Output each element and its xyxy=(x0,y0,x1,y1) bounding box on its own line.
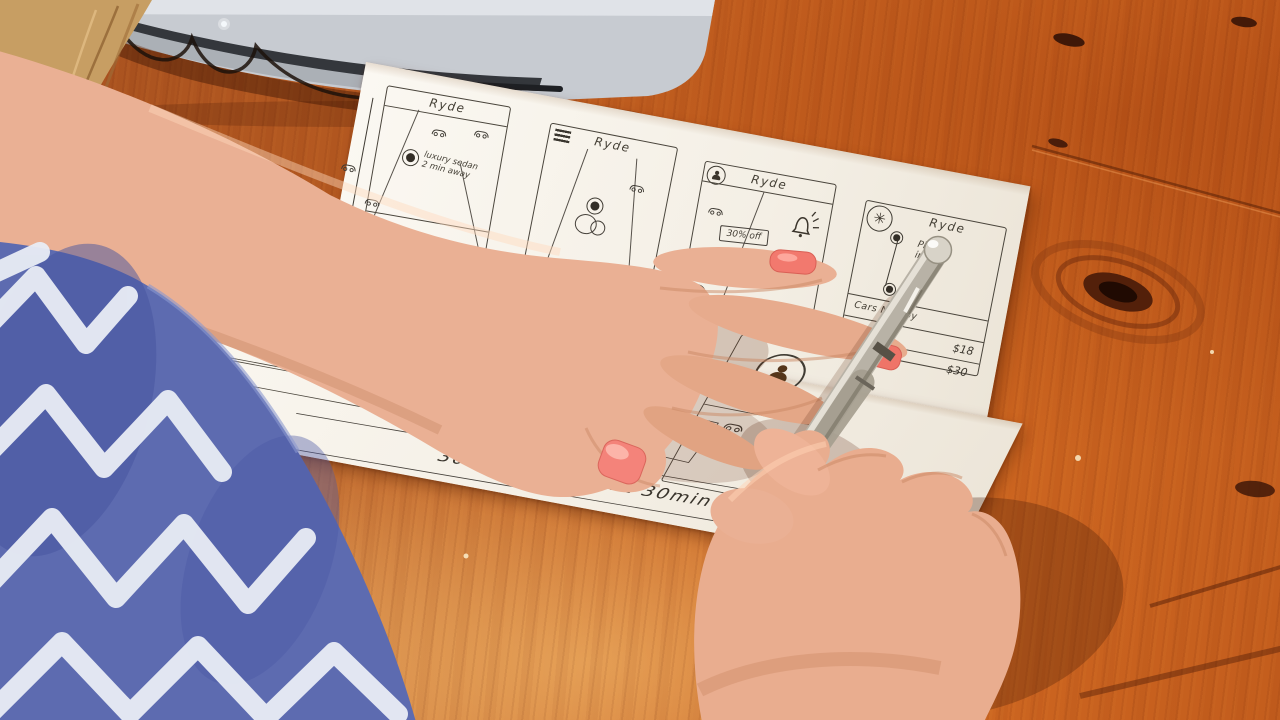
pen-cap xyxy=(925,237,952,264)
photo-scene: Ryde luxury sedan 2 min away Ryde xyxy=(0,0,1280,720)
fingernail-index xyxy=(769,249,817,275)
figure-layer xyxy=(0,0,1280,720)
